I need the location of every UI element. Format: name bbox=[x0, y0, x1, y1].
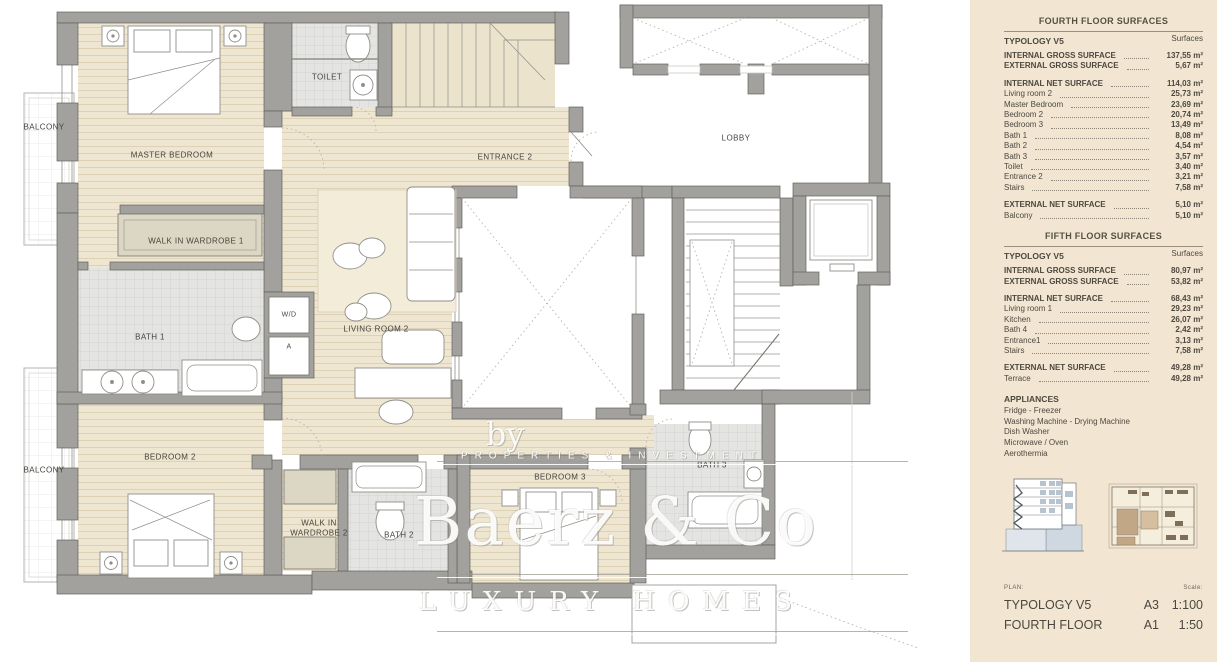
room-label-walk-in-wardrobe-2: WALK IN WARDROBE 2 bbox=[290, 519, 348, 540]
surface-row: Bath 24,54 m² bbox=[1004, 141, 1203, 151]
plan-name: TYPOLOGY V5 bbox=[1004, 595, 1129, 615]
page: BALCONY MASTER BEDROOM TOILET ENTRANCE 2… bbox=[0, 0, 1217, 662]
surface-row: Toilet3,40 m² bbox=[1004, 162, 1203, 172]
building-section-thumbnail bbox=[1000, 471, 1086, 563]
plan-floor: FOURTH FLOOR bbox=[1004, 615, 1129, 635]
room-label-bath-2: BATH 2 bbox=[384, 531, 414, 540]
divider bbox=[1004, 31, 1203, 32]
room-label-entrance-2: ENTRANCE 2 bbox=[478, 153, 533, 162]
title-block-row: FOURTH FLOOR A1 1:50 bbox=[1004, 615, 1203, 635]
room-label-bedroom-2: BEDROOM 2 bbox=[144, 453, 196, 462]
communal-stairs bbox=[686, 210, 780, 390]
surface-row: INTERNAL NET SURFACE114,03 m² bbox=[1004, 79, 1203, 89]
title-block: PLAN: Scale: TYPOLOGY V5 A3 1:100 FOURTH… bbox=[1004, 585, 1203, 635]
surface-row: Terrace49,28 m² bbox=[1004, 374, 1203, 384]
surface-row: Bedroom 220,74 m² bbox=[1004, 110, 1203, 120]
floor-plan-drawing bbox=[0, 0, 970, 662]
surface-row: Living room 129,23 m² bbox=[1004, 304, 1203, 314]
appliance-item: Aerothermia bbox=[1004, 449, 1203, 460]
surface-row: EXTERNAL GROSS SURFACE53,82 m² bbox=[1004, 277, 1203, 287]
room-label-balcony-top: BALCONY bbox=[23, 123, 64, 132]
surfaces-sidebar: FOURTH FLOOR SURFACES Surfaces TYPOLOGY … bbox=[970, 0, 1217, 662]
sheet-scale: 1:100 bbox=[1159, 595, 1203, 615]
room-label-bath-3: BATH 3 bbox=[697, 461, 727, 470]
sheet-size: A1 bbox=[1129, 615, 1159, 635]
lobby-doors bbox=[571, 66, 772, 156]
divider bbox=[1004, 246, 1203, 247]
surface-row: Balcony5,10 m² bbox=[1004, 211, 1203, 221]
sheet-scale: 1:50 bbox=[1159, 615, 1203, 635]
surface-row: EXTERNAL GROSS SURFACE5,67 m² bbox=[1004, 61, 1203, 71]
surface-row: Master Bedroom23,69 m² bbox=[1004, 100, 1203, 110]
fourth-floor-section: FOURTH FLOOR SURFACES Surfaces TYPOLOGY … bbox=[1004, 16, 1203, 221]
surface-row: Bath 42,42 m² bbox=[1004, 325, 1203, 335]
appliance-item: Washing Machine - Drying Machine bbox=[1004, 417, 1203, 428]
fifth-floor-section: FIFTH FLOOR SURFACES Surfaces TYPOLOGY V… bbox=[1004, 231, 1203, 384]
surface-row: EXTERNAL NET SURFACE49,28 m² bbox=[1004, 363, 1203, 373]
surface-row: INTERNAL GROSS SURFACE137,55 m² bbox=[1004, 51, 1203, 61]
appliance-item: Microwave / Oven bbox=[1004, 438, 1203, 449]
surface-row: Entrance13,13 m² bbox=[1004, 336, 1203, 346]
room-label-master-bedroom: MASTER BEDROOM bbox=[131, 151, 214, 160]
room-label-a-closet: A bbox=[286, 344, 291, 351]
surface-row: EXTERNAL NET SURFACE5,10 m² bbox=[1004, 200, 1203, 210]
floor-plan-area: BALCONY MASTER BEDROOM TOILET ENTRANCE 2… bbox=[0, 0, 970, 662]
elevator bbox=[810, 200, 872, 271]
surface-row: Living room 225,73 m² bbox=[1004, 89, 1203, 99]
appliance-item: Dish Washer bbox=[1004, 427, 1203, 438]
room-label-lobby: LOBBY bbox=[722, 134, 751, 143]
room-label-toilet: TOILET bbox=[312, 73, 342, 82]
surface-row: Bath 18,08 m² bbox=[1004, 131, 1203, 141]
surface-row: INTERNAL NET SURFACE68,43 m² bbox=[1004, 294, 1203, 304]
surface-row: INTERNAL GROSS SURFACE80,97 m² bbox=[1004, 266, 1203, 276]
room-label-walk-in-wardrobe-1: WALK IN WARDROBE 1 bbox=[148, 237, 244, 246]
title-block-row: TYPOLOGY V5 A3 1:100 bbox=[1004, 595, 1203, 615]
room-label-bedroom-3: BEDROOM 3 bbox=[534, 473, 586, 482]
room-label-wd: W/D bbox=[282, 312, 297, 319]
surface-row: Bath 33,57 m² bbox=[1004, 152, 1203, 162]
appliance-item: Fridge - Freezer bbox=[1004, 406, 1203, 417]
surface-row: Entrance 23,21 m² bbox=[1004, 172, 1203, 182]
plan-label: PLAN: bbox=[1004, 585, 1024, 591]
sheet-size: A3 bbox=[1129, 595, 1159, 615]
scale-label: Scale: bbox=[1183, 585, 1203, 591]
surface-row: Stairs7,58 m² bbox=[1004, 346, 1203, 356]
thumbnail-drawings bbox=[1004, 469, 1203, 573]
room-label-balcony-bottom: BALCONY bbox=[23, 466, 64, 475]
surface-row: Bedroom 313,49 m² bbox=[1004, 120, 1203, 130]
room-label-bath-1: BATH 1 bbox=[135, 333, 165, 342]
surface-row: Stairs7,58 m² bbox=[1004, 183, 1203, 193]
fourth-floor-title: FOURTH FLOOR SURFACES bbox=[1004, 16, 1203, 26]
room-label-living-room-2: LIVING ROOM 2 bbox=[343, 325, 408, 334]
appliances-section: APPLIANCES Fridge - Freezer Washing Mach… bbox=[1004, 394, 1203, 459]
surface-row: Kitchen26,07 m² bbox=[1004, 315, 1203, 325]
appliances-title: APPLIANCES bbox=[1004, 394, 1203, 404]
key-plan-thumbnail bbox=[1108, 481, 1200, 555]
fifth-floor-title: FIFTH FLOOR SURFACES bbox=[1004, 231, 1203, 241]
